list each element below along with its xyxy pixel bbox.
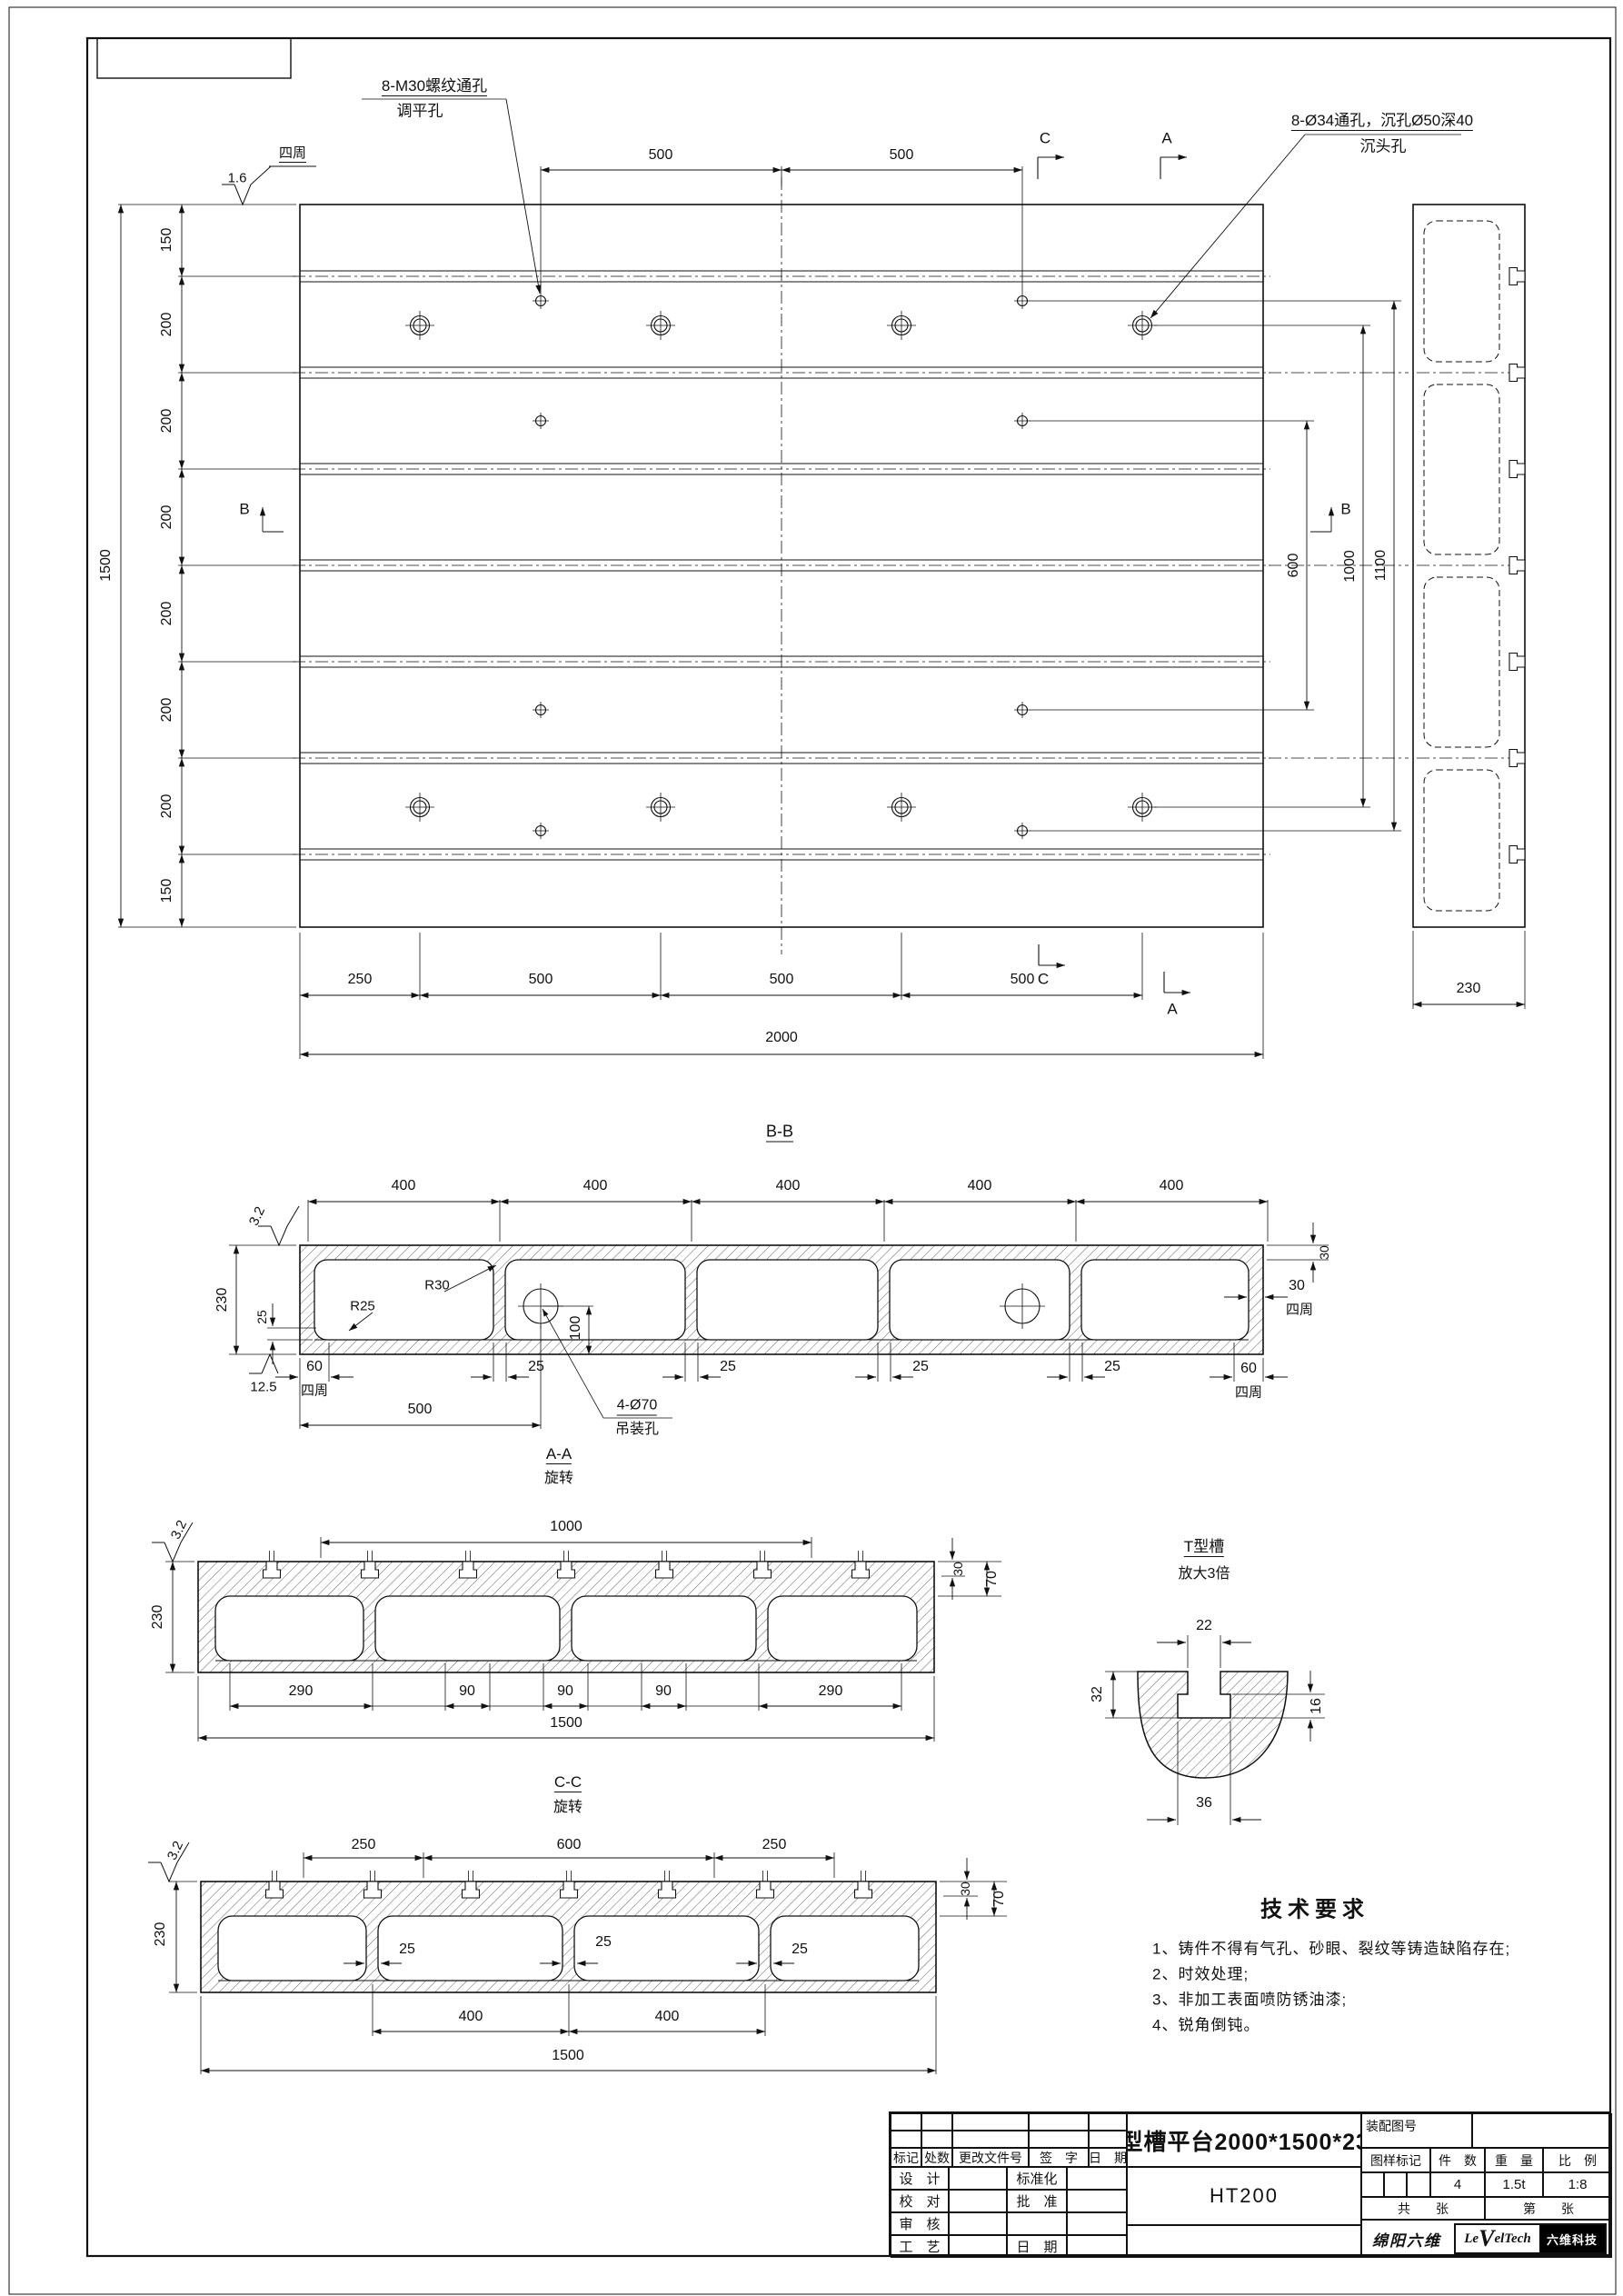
dim-label: 旋转 bbox=[553, 1801, 582, 1815]
dim-label: 25 bbox=[792, 1942, 808, 1957]
dim-label: A bbox=[1161, 131, 1171, 146]
section-bb bbox=[229, 1200, 1329, 1429]
dim-label: 500 bbox=[408, 1403, 433, 1417]
role-label: 审 核 bbox=[891, 2212, 949, 2235]
tech-req-title: 技术要求 bbox=[1260, 1892, 1369, 1923]
dim-label: 60 bbox=[1240, 1362, 1257, 1376]
tech-req-item: 1、铸件不得有气孔、砂眼、裂纹等铸造缺陷存在; bbox=[1152, 1936, 1510, 1959]
role-label: 校 对 bbox=[891, 2190, 949, 2212]
dim-label: T型槽 bbox=[1184, 1539, 1224, 1557]
dim-label: 200 bbox=[160, 602, 174, 626]
role-label: 批 准 bbox=[1007, 2190, 1067, 2212]
dim-label: 32 bbox=[1090, 1686, 1105, 1702]
dim-label: 旋转 bbox=[544, 1472, 573, 1486]
leveltech-logo: LeVelTech 六维科技 bbox=[1454, 2223, 1607, 2254]
dim-label: 150 bbox=[160, 879, 174, 903]
dim-label: 2000 bbox=[765, 1031, 798, 1045]
dim-label: B-B bbox=[766, 1123, 793, 1143]
role-label: 日 期 bbox=[1007, 2235, 1067, 2258]
dim-label: 30 bbox=[959, 1882, 971, 1896]
dim-label: 230 bbox=[154, 1922, 168, 1947]
dim-label: 30 bbox=[1318, 1245, 1330, 1260]
dim-label: 四周 bbox=[301, 1384, 328, 1398]
dim-label: 290 bbox=[819, 1684, 843, 1699]
dim-label: 1500 bbox=[552, 2049, 584, 2063]
assembly-no-label: 装配图号 bbox=[1361, 2113, 1472, 2148]
rev-header: 日 期 bbox=[1089, 2148, 1127, 2167]
dim-label: 吊装孔 bbox=[615, 1423, 659, 1437]
dim-label: 400 bbox=[655, 2010, 680, 2024]
dim-label: 1500 bbox=[99, 549, 114, 582]
rev-header: 签 字 bbox=[1029, 2148, 1089, 2167]
role-value bbox=[949, 2190, 1007, 2212]
dim-label: 25 bbox=[255, 1310, 268, 1324]
dim-label: 70 bbox=[985, 1571, 1000, 1587]
company-name: 绵阳六维 bbox=[1361, 2220, 1452, 2258]
dim-label: 8-M30螺纹通孔 bbox=[382, 78, 487, 96]
role-value bbox=[1067, 2190, 1127, 2212]
dim-label: 200 bbox=[160, 698, 174, 723]
material: HT200 bbox=[1127, 2167, 1361, 2225]
dim-label: 600 bbox=[557, 1838, 582, 1852]
dim-label: A-A bbox=[546, 1446, 572, 1464]
drawing-sheet: .o{fill:none;stroke:#111;stroke-width:1.… bbox=[0, 0, 1623, 2296]
dim-label: 600 bbox=[1287, 554, 1301, 578]
dim-label: 25 bbox=[528, 1360, 544, 1374]
dim-label: 25 bbox=[595, 1935, 612, 1950]
dim-label: R30 bbox=[424, 1279, 450, 1293]
dim-label: 90 bbox=[655, 1684, 672, 1699]
dim-label: 290 bbox=[289, 1684, 314, 1699]
dim-label: 1500 bbox=[550, 1716, 582, 1731]
dim-label: 70 bbox=[992, 1891, 1007, 1907]
qty-value: 4 bbox=[1430, 2172, 1485, 2197]
dim-label: C-C bbox=[554, 1774, 582, 1792]
qty-label: 件 数 bbox=[1430, 2148, 1485, 2172]
dim-label: 30 bbox=[1289, 1279, 1305, 1293]
dim-label: 230 bbox=[1457, 982, 1481, 996]
scale-label: 比 例 bbox=[1543, 2148, 1612, 2172]
plan-view bbox=[118, 99, 1461, 1059]
tslot-detail bbox=[1105, 1635, 1325, 1825]
dim-label: 500 bbox=[649, 148, 673, 163]
role-value bbox=[1067, 2235, 1127, 2258]
dim-label: 230 bbox=[215, 1288, 230, 1313]
section-aa bbox=[152, 1522, 1001, 1742]
dim-label: 500 bbox=[890, 148, 914, 163]
dim-label: 1000 bbox=[1343, 550, 1358, 583]
dim-label: 200 bbox=[160, 794, 174, 819]
scale-value: 1:8 bbox=[1543, 2172, 1612, 2197]
dim-label: 调平孔 bbox=[397, 104, 443, 119]
dim-label: B bbox=[239, 502, 249, 517]
dim-label: 22 bbox=[1196, 1619, 1212, 1633]
dim-label: 4-Ø70 bbox=[617, 1399, 657, 1416]
mark-label: 图样标记 bbox=[1361, 2148, 1430, 2172]
dim-label: 230 bbox=[151, 1605, 165, 1630]
logo-wordmark: LeVelTech bbox=[1456, 2225, 1539, 2252]
dim-label: R25 bbox=[350, 1300, 375, 1313]
dim-label: 250 bbox=[348, 973, 373, 987]
dim-label: 25 bbox=[399, 1942, 415, 1957]
dim-label: 400 bbox=[583, 1179, 608, 1193]
sheet-no: 第 张 bbox=[1485, 2197, 1612, 2220]
dim-label: 200 bbox=[160, 409, 174, 434]
title-block: 标记 处数 更改文件号 签 字 日 期 设 计 标准化 校 对 批 准 审 核 … bbox=[889, 2111, 1610, 2256]
role-value bbox=[1067, 2167, 1127, 2190]
dim-label: 1000 bbox=[550, 1520, 582, 1534]
dim-label: 12.5 bbox=[250, 1381, 276, 1394]
role-label: 设 计 bbox=[891, 2167, 949, 2190]
dim-label: 400 bbox=[392, 1179, 416, 1193]
dim-label: 四周 bbox=[1286, 1303, 1313, 1317]
dim-label: 25 bbox=[1104, 1360, 1120, 1374]
role-value bbox=[949, 2212, 1007, 2235]
tech-req-item: 4、锐角倒钝。 bbox=[1152, 2012, 1260, 2035]
dim-label: 200 bbox=[160, 313, 174, 337]
role-label bbox=[1007, 2212, 1067, 2235]
dim-label: 8-Ø34通孔，沉孔Ø50深40 bbox=[1291, 113, 1473, 131]
dim-label: 25 bbox=[912, 1360, 929, 1374]
dim-label: 400 bbox=[776, 1179, 801, 1193]
dim-label: 100 bbox=[569, 1316, 583, 1341]
role-value bbox=[949, 2235, 1007, 2258]
rev-header: 更改文件号 bbox=[952, 2148, 1029, 2167]
weight-value: 1.5t bbox=[1485, 2172, 1543, 2197]
side-view bbox=[1413, 205, 1525, 1009]
sheet-total: 共 张 bbox=[1361, 2197, 1485, 2220]
logo-badge: 六维科技 bbox=[1539, 2225, 1605, 2252]
dim-label: 90 bbox=[557, 1684, 573, 1699]
dim-label: 沉头孔 bbox=[1360, 139, 1407, 155]
dim-label: 90 bbox=[459, 1684, 475, 1699]
dim-label: 250 bbox=[352, 1838, 376, 1852]
role-value bbox=[949, 2167, 1007, 2190]
dim-label: 30 bbox=[951, 1562, 964, 1576]
tech-req-item: 3、非加工表面喷防锈油漆; bbox=[1152, 1987, 1347, 2010]
dim-label: 500 bbox=[529, 973, 553, 987]
dim-label: B bbox=[1340, 502, 1350, 517]
dim-label: 16 bbox=[1309, 1698, 1324, 1714]
dim-label: 400 bbox=[968, 1179, 992, 1193]
dim-label: 四周 bbox=[279, 146, 306, 163]
dim-label: 500 bbox=[770, 973, 794, 987]
dim-label: 放大3倍 bbox=[1179, 1567, 1230, 1582]
rev-header: 标记 bbox=[891, 2148, 921, 2167]
weight-label: 重 量 bbox=[1485, 2148, 1543, 2172]
assembly-no-value bbox=[1472, 2113, 1612, 2148]
dim-label: 四周 bbox=[1235, 1386, 1262, 1400]
dim-label: C bbox=[1040, 131, 1050, 146]
tech-req-item: 2、时效处理; bbox=[1152, 1962, 1249, 1984]
role-value bbox=[1067, 2212, 1127, 2235]
section-cc bbox=[148, 1842, 1007, 2074]
dim-label: 25 bbox=[720, 1360, 736, 1374]
dim-label: 200 bbox=[160, 505, 174, 530]
rev-header: 处数 bbox=[921, 2148, 952, 2167]
dim-label: 150 bbox=[160, 228, 174, 253]
dim-label: A bbox=[1167, 1002, 1177, 1017]
role-label: 标准化 bbox=[1007, 2167, 1067, 2190]
dim-label: 250 bbox=[762, 1838, 787, 1852]
role-label: 工 艺 bbox=[891, 2235, 949, 2258]
dim-label: 1100 bbox=[1374, 550, 1389, 581]
part-title: T型槽平台2000*1500*230 bbox=[1127, 2113, 1361, 2167]
dim-label: 400 bbox=[1160, 1179, 1184, 1193]
dim-label: C bbox=[1038, 972, 1049, 987]
dim-label: 60 bbox=[306, 1360, 323, 1374]
dim-label: 36 bbox=[1196, 1796, 1212, 1811]
dim-label: 400 bbox=[459, 2010, 483, 2024]
dim-label: 1.6 bbox=[228, 172, 247, 185]
dim-label: 500 bbox=[1011, 973, 1035, 987]
